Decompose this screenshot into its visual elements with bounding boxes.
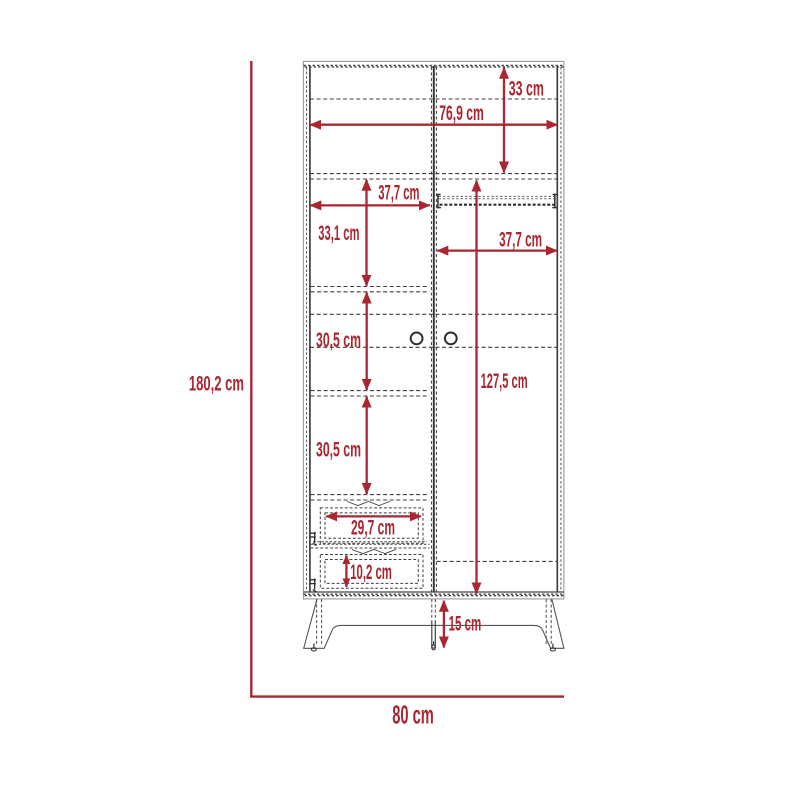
svg-text:180,2 cm: 180,2 cm <box>189 371 244 395</box>
svg-text:37,7 cm: 37,7 cm <box>378 182 419 205</box>
svg-text:15 cm: 15 cm <box>449 613 482 636</box>
svg-text:127,5 cm: 127,5 cm <box>481 370 528 393</box>
svg-text:33,1 cm: 33,1 cm <box>318 222 359 245</box>
svg-text:29,7 cm: 29,7 cm <box>351 517 395 540</box>
svg-text:33 cm: 33 cm <box>509 77 544 100</box>
svg-text:30,5 cm: 30,5 cm <box>316 438 361 461</box>
svg-text:80 cm: 80 cm <box>392 700 434 730</box>
svg-text:76,9 cm: 76,9 cm <box>439 102 484 125</box>
svg-text:30,5 cm: 30,5 cm <box>316 329 361 352</box>
svg-text:37,7 cm: 37,7 cm <box>499 229 542 252</box>
svg-text:10,2 cm: 10,2 cm <box>350 561 392 584</box>
